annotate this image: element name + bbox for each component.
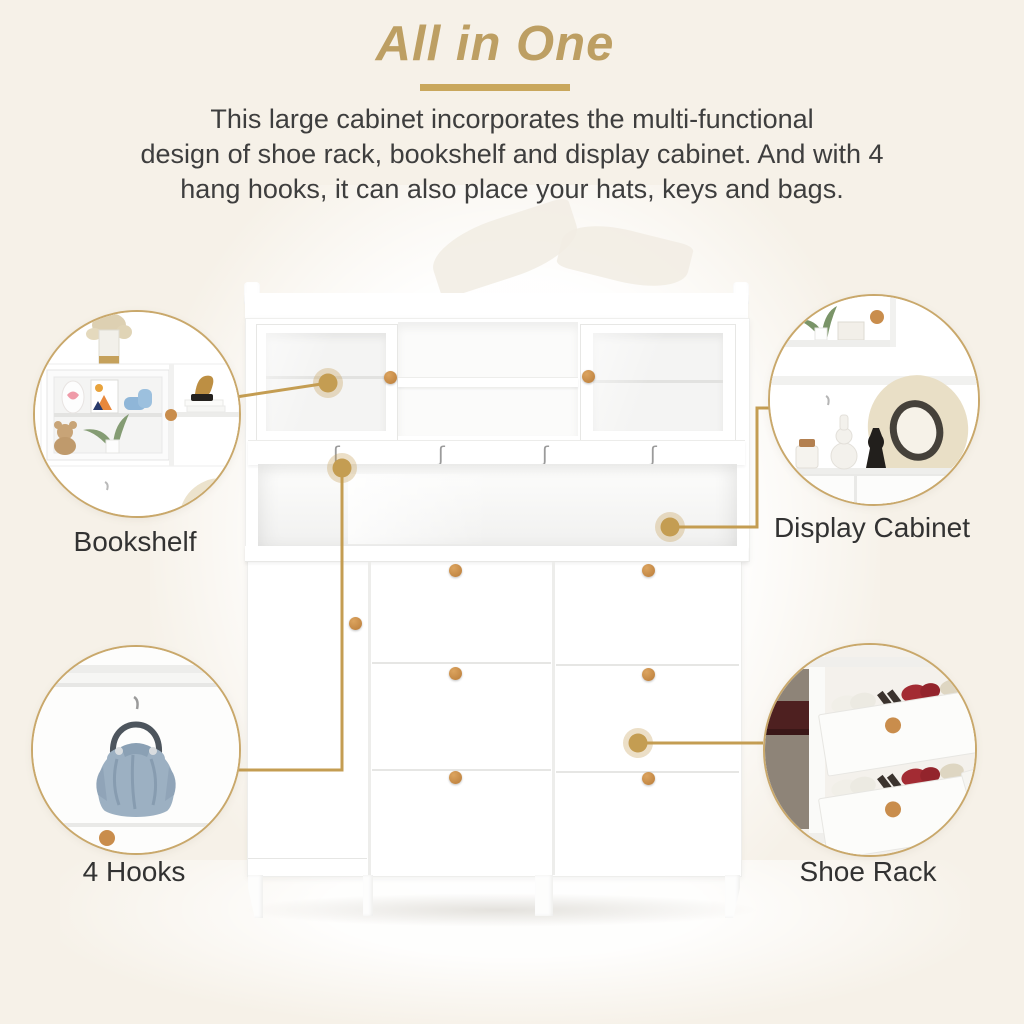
cabinet-divider (368, 562, 371, 875)
feature-label-display-cabinet: Display Cabinet (772, 512, 972, 544)
jar (796, 439, 818, 468)
cabinet-leg (535, 875, 553, 916)
glass-door-right-interior (593, 333, 723, 431)
books (838, 322, 864, 340)
lower-cabinet (247, 561, 742, 877)
counter-board (245, 546, 748, 562)
wood-knob-icon (642, 668, 655, 681)
feature-circle-display-cabinet (768, 294, 980, 506)
feature-circle-hooks (31, 645, 241, 855)
wood-knob-icon (582, 370, 595, 383)
description-line: This large cabinet incorporates the mult… (0, 102, 1024, 137)
hooks-photo (33, 647, 239, 853)
drawer-gap (372, 662, 551, 664)
page-title: All in One (0, 16, 990, 72)
s-hook-icon: ʃ (650, 444, 657, 464)
glass-door-left-interior (266, 333, 386, 431)
header: All in One (0, 0, 990, 91)
wood-knob-icon (642, 772, 655, 785)
glass-door-left (256, 324, 398, 442)
open-shelf-middle (398, 322, 578, 436)
plush-toy (62, 381, 84, 413)
feature-label-shoe-rack: Shoe Rack (768, 856, 968, 888)
feature-circle-bookshelf (33, 310, 241, 518)
glass-door-right (580, 324, 736, 442)
coat-cubby (258, 464, 737, 546)
cubby-highlight (348, 474, 588, 544)
cabinet-divider (552, 562, 555, 875)
door-bottom-line (248, 858, 367, 859)
s-hook-icon: ʃ (333, 444, 340, 464)
hook-rail (248, 440, 745, 465)
feature-label-hooks: 4 Hooks (34, 856, 234, 888)
middle-shelf-board (398, 377, 578, 387)
title-underline (420, 84, 570, 91)
feature-label-bookshelf: Bookshelf (35, 526, 235, 558)
drawer-gap (556, 664, 739, 666)
wood-knob-icon (449, 667, 462, 680)
wood-knob-icon (384, 371, 397, 384)
cabinet-leg (363, 875, 373, 916)
wood-knob-icon (165, 409, 177, 421)
wood-knob-icon (870, 310, 884, 324)
art-print (91, 380, 118, 413)
description-line: hang hooks, it can also place your hats,… (0, 172, 1024, 207)
wood-knob-icon (449, 564, 462, 577)
display-cabinet-photo (770, 296, 978, 504)
glass-sheen (593, 333, 723, 431)
description-line: design of shoe rack, bookshelf and displ… (0, 137, 1024, 172)
wood-knob-icon (99, 830, 115, 846)
wood-knob-icon (642, 564, 655, 577)
s-hook-icon: ʃ (542, 444, 549, 464)
s-hook-icon: ʃ (438, 444, 445, 464)
cabinet-top-shelf (245, 293, 748, 319)
shoe-rack-photo (765, 645, 975, 855)
cabinet-floor-shadow (240, 893, 760, 927)
drawer-gap (372, 769, 551, 771)
glass-sheen (266, 333, 386, 431)
wood-knob-icon (349, 617, 362, 630)
bookshelf-photo (35, 312, 239, 516)
wood-knob-icon (449, 771, 462, 784)
description: This large cabinet incorporates the mult… (0, 102, 1024, 207)
feature-circle-shoe-rack (763, 643, 977, 857)
